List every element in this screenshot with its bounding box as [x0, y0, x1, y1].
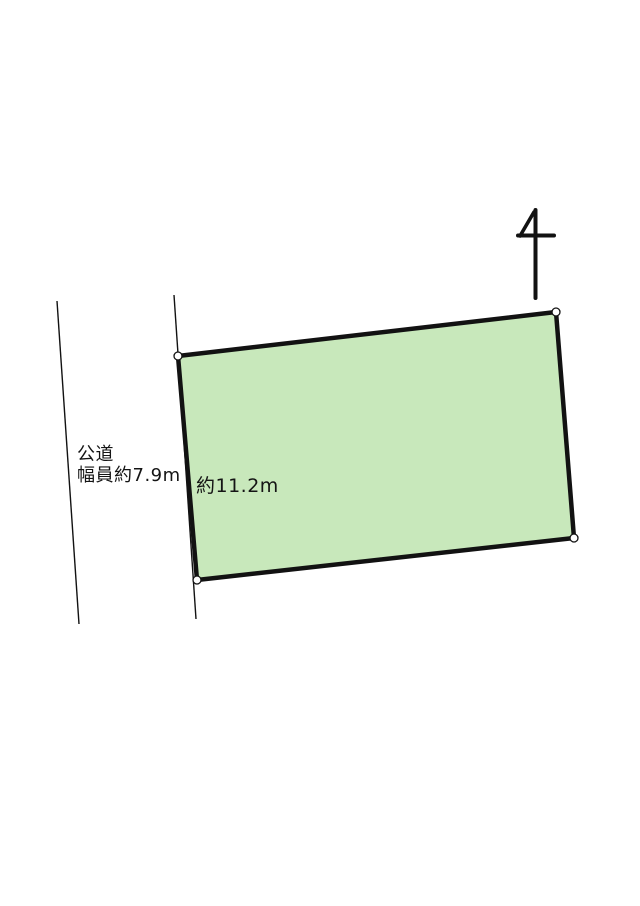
corner-marker-top-left — [174, 352, 182, 360]
road-label-name: 公道 — [77, 444, 181, 465]
north-arrow-icon — [518, 210, 554, 298]
road-edge-left-line — [57, 301, 79, 624]
corner-marker-top-right — [552, 308, 560, 316]
plot-diagram: 公道 幅員約7.9m 約11.2m — [0, 0, 640, 906]
land-parcel-shape — [178, 312, 574, 580]
corner-marker-bottom-left — [193, 576, 201, 584]
parcel-frontage-label: 約11.2m — [196, 471, 279, 498]
corner-marker-bottom-right — [570, 534, 578, 542]
road-label-width: 幅員約7.9m — [77, 465, 181, 486]
road-label: 公道 幅員約7.9m — [77, 444, 181, 486]
